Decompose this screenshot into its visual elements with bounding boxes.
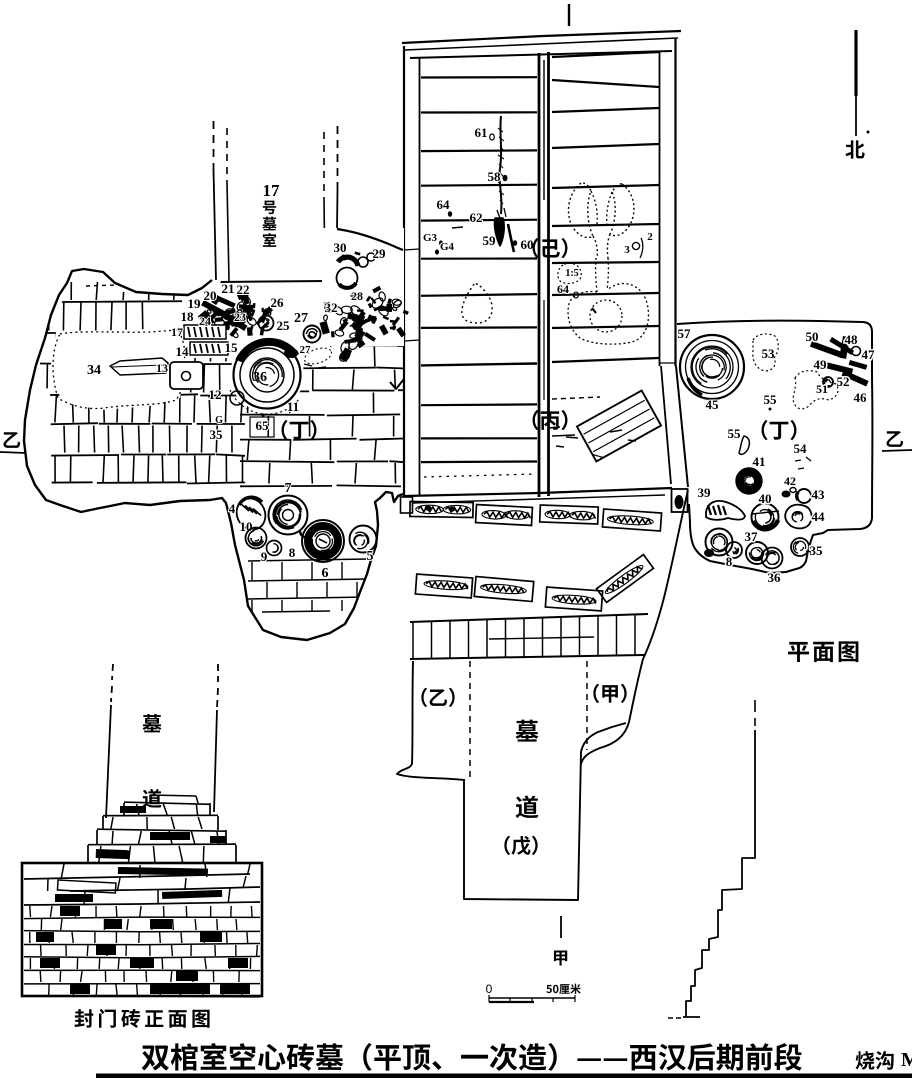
svg-text:34: 34	[87, 363, 101, 378]
svg-text:25: 25	[277, 318, 291, 333]
svg-text:60: 60	[521, 237, 534, 252]
svg-text:11: 11	[287, 399, 299, 414]
svg-text:37: 37	[745, 529, 759, 544]
svg-text:46: 46	[854, 390, 868, 405]
svg-text:40: 40	[759, 491, 772, 506]
svg-text:64: 64	[557, 282, 569, 296]
svg-text:13: 13	[156, 361, 168, 375]
svg-text:43: 43	[812, 487, 826, 502]
svg-text:12: 12	[209, 387, 222, 402]
svg-text:55: 55	[764, 392, 778, 407]
svg-text:50: 50	[806, 329, 819, 344]
svg-text:15: 15	[225, 340, 239, 355]
svg-text:41: 41	[753, 454, 766, 469]
svg-text:6: 6	[322, 566, 329, 581]
svg-text:21: 21	[222, 281, 235, 296]
svg-text:27: 27	[294, 311, 308, 326]
svg-text:17: 17	[171, 325, 183, 339]
svg-text:M: M	[901, 1049, 912, 1071]
svg-text:18: 18	[181, 309, 195, 324]
svg-text:7: 7	[285, 481, 292, 496]
svg-text:27: 27	[300, 344, 312, 356]
svg-text:24: 24	[199, 314, 211, 328]
svg-text:5: 5	[367, 549, 374, 564]
svg-text:9: 9	[261, 549, 268, 564]
svg-text:0: 0	[486, 982, 493, 996]
svg-text:2: 2	[647, 231, 653, 243]
svg-text:29: 29	[373, 246, 387, 261]
svg-text:55: 55	[728, 426, 742, 441]
svg-text:G4: G4	[440, 241, 455, 253]
svg-text:3: 3	[624, 244, 630, 256]
svg-text:64: 64	[437, 197, 451, 212]
svg-text:52: 52	[837, 374, 850, 389]
svg-text:G: G	[215, 415, 223, 426]
svg-text:8: 8	[726, 554, 733, 569]
svg-text:48: 48	[845, 332, 859, 347]
svg-text:45: 45	[706, 397, 720, 412]
svg-text:22: 22	[237, 282, 250, 297]
svg-text:44: 44	[812, 509, 826, 524]
svg-text:8: 8	[289, 545, 296, 560]
svg-text:61: 61	[475, 125, 488, 140]
svg-text:1:5: 1:5	[565, 268, 578, 279]
svg-text:17: 17	[263, 181, 281, 200]
svg-text:14: 14	[176, 344, 190, 359]
svg-text:65: 65	[256, 418, 270, 433]
svg-text:36: 36	[768, 570, 782, 585]
svg-text:51: 51	[816, 382, 828, 396]
svg-text:23: 23	[234, 310, 246, 324]
svg-text:42: 42	[784, 474, 796, 488]
svg-text:35: 35	[810, 543, 824, 558]
svg-text:47: 47	[862, 347, 876, 362]
svg-text:49: 49	[814, 357, 828, 372]
svg-text:35: 35	[210, 427, 224, 442]
svg-text:36: 36	[253, 370, 267, 385]
svg-text:62: 62	[470, 210, 483, 225]
svg-text:G3: G3	[423, 232, 438, 244]
svg-text:32: 32	[325, 300, 338, 315]
svg-text:58: 58	[488, 169, 502, 184]
svg-text:57: 57	[678, 326, 692, 341]
svg-text:20: 20	[204, 288, 217, 303]
svg-text:26: 26	[271, 295, 285, 310]
svg-text:53: 53	[762, 346, 776, 361]
svg-text:59: 59	[483, 233, 497, 248]
svg-text:4: 4	[229, 501, 236, 516]
svg-text:28: 28	[351, 289, 363, 303]
svg-text:39: 39	[698, 485, 712, 500]
svg-text:30: 30	[334, 240, 347, 255]
svg-text:54: 54	[794, 441, 808, 456]
